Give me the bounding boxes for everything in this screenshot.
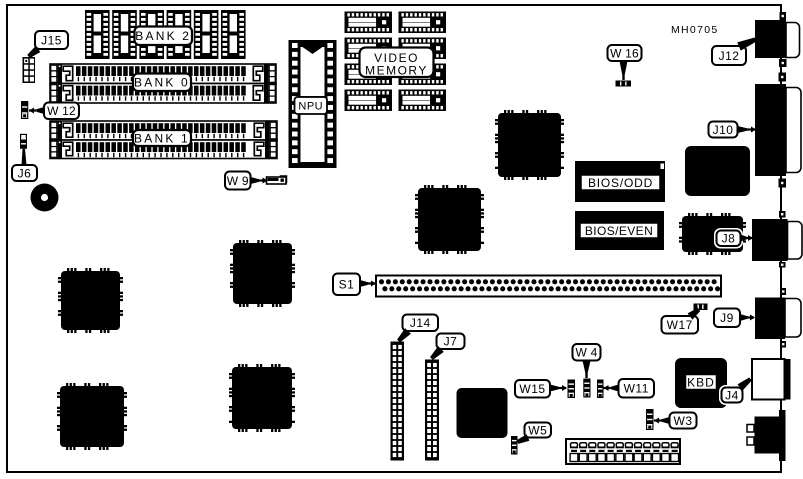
svg-text:BANK 0: BANK 0 — [134, 76, 190, 90]
svg-text:W5: W5 — [528, 423, 547, 437]
svg-text:BANK 1: BANK 1 — [134, 131, 190, 145]
svg-text:MH0705: MH0705 — [671, 24, 719, 36]
svg-text:MEMORY: MEMORY — [365, 64, 428, 78]
svg-text:J12: J12 — [719, 49, 740, 63]
svg-text:BIOS/EVEN: BIOS/EVEN — [585, 224, 653, 238]
svg-text:W3: W3 — [674, 414, 693, 428]
svg-text:J4: J4 — [725, 388, 739, 402]
svg-text:S1: S1 — [339, 278, 355, 292]
svg-text:J10: J10 — [713, 123, 734, 137]
svg-text:W 12: W 12 — [47, 104, 76, 118]
svg-text:KBD: KBD — [687, 375, 715, 389]
svg-text:NPU: NPU — [298, 100, 323, 112]
svg-text:J8: J8 — [722, 232, 736, 246]
svg-text:W17: W17 — [667, 318, 693, 332]
svg-text:BANK 2: BANK 2 — [135, 29, 191, 43]
svg-text:BIOS/ODD: BIOS/ODD — [588, 176, 653, 190]
svg-text:W15: W15 — [519, 382, 545, 396]
svg-text:W 9: W 9 — [227, 174, 249, 188]
svg-text:W 16: W 16 — [610, 46, 639, 60]
svg-text:J7: J7 — [444, 335, 458, 349]
svg-text:J14: J14 — [410, 316, 431, 330]
svg-text:W11: W11 — [624, 382, 649, 396]
svg-text:J6: J6 — [18, 166, 32, 180]
svg-text:J15: J15 — [41, 33, 62, 47]
svg-text:W 4: W 4 — [576, 346, 598, 360]
svg-text:J9: J9 — [720, 311, 734, 325]
